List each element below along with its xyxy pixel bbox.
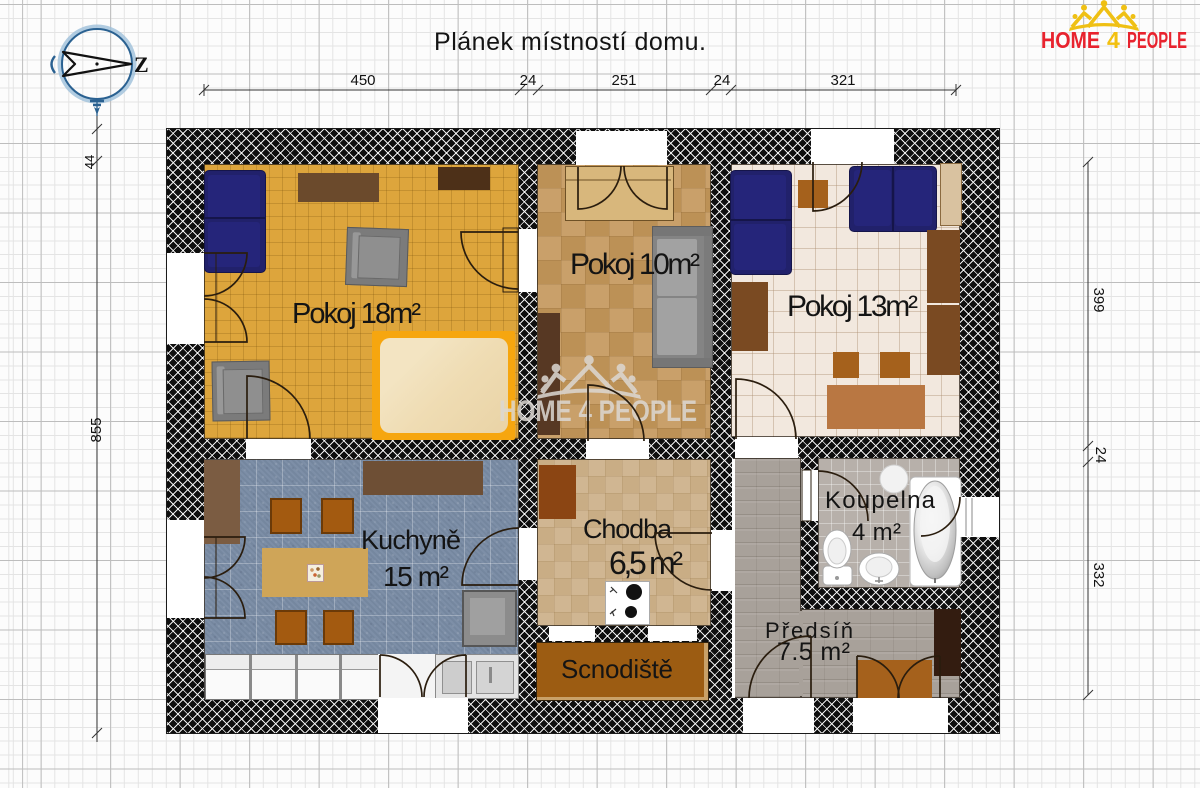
svg-text:Chodba: Chodba [583, 514, 673, 544]
svg-text:PEOPLE: PEOPLE [1127, 27, 1187, 53]
svg-text:44: 44 [82, 155, 97, 169]
svg-text:HOME: HOME [1041, 27, 1100, 53]
svg-text:Pokoj 18m²: Pokoj 18m² [292, 298, 421, 330]
svg-text:6,5 m²: 6,5 m² [609, 545, 683, 581]
svg-text:24: 24 [714, 72, 731, 89]
svg-text:Pokoj 13m²: Pokoj 13m² [787, 290, 918, 323]
svg-text:Koupelna: Koupelna [825, 487, 936, 514]
svg-text:399: 399 [1090, 287, 1107, 312]
svg-text:332: 332 [1090, 562, 1107, 587]
svg-text:7.5 m²: 7.5 m² [777, 638, 850, 666]
svg-text:Z: Z [134, 52, 149, 77]
svg-text:4: 4 [1107, 27, 1120, 53]
svg-text:Plánek místností domu.: Plánek místností domu. [434, 28, 706, 56]
svg-text:Pokoj 10m²: Pokoj 10m² [570, 248, 700, 281]
svg-text:Scnodiště: Scnodiště [561, 654, 673, 684]
svg-text:251: 251 [611, 72, 636, 89]
svg-text:15 m²: 15 m² [383, 561, 449, 592]
svg-text:4 m²: 4 m² [852, 519, 901, 546]
svg-text:Kuchyně: Kuchyně [361, 525, 461, 555]
svg-text:450: 450 [350, 72, 375, 89]
svg-text:855: 855 [88, 417, 105, 442]
svg-text:24: 24 [520, 72, 537, 89]
svg-text:24: 24 [1092, 447, 1109, 464]
svg-text:321: 321 [830, 72, 855, 89]
svg-text:HOME 4 PEOPLE: HOME 4 PEOPLE [499, 395, 697, 428]
